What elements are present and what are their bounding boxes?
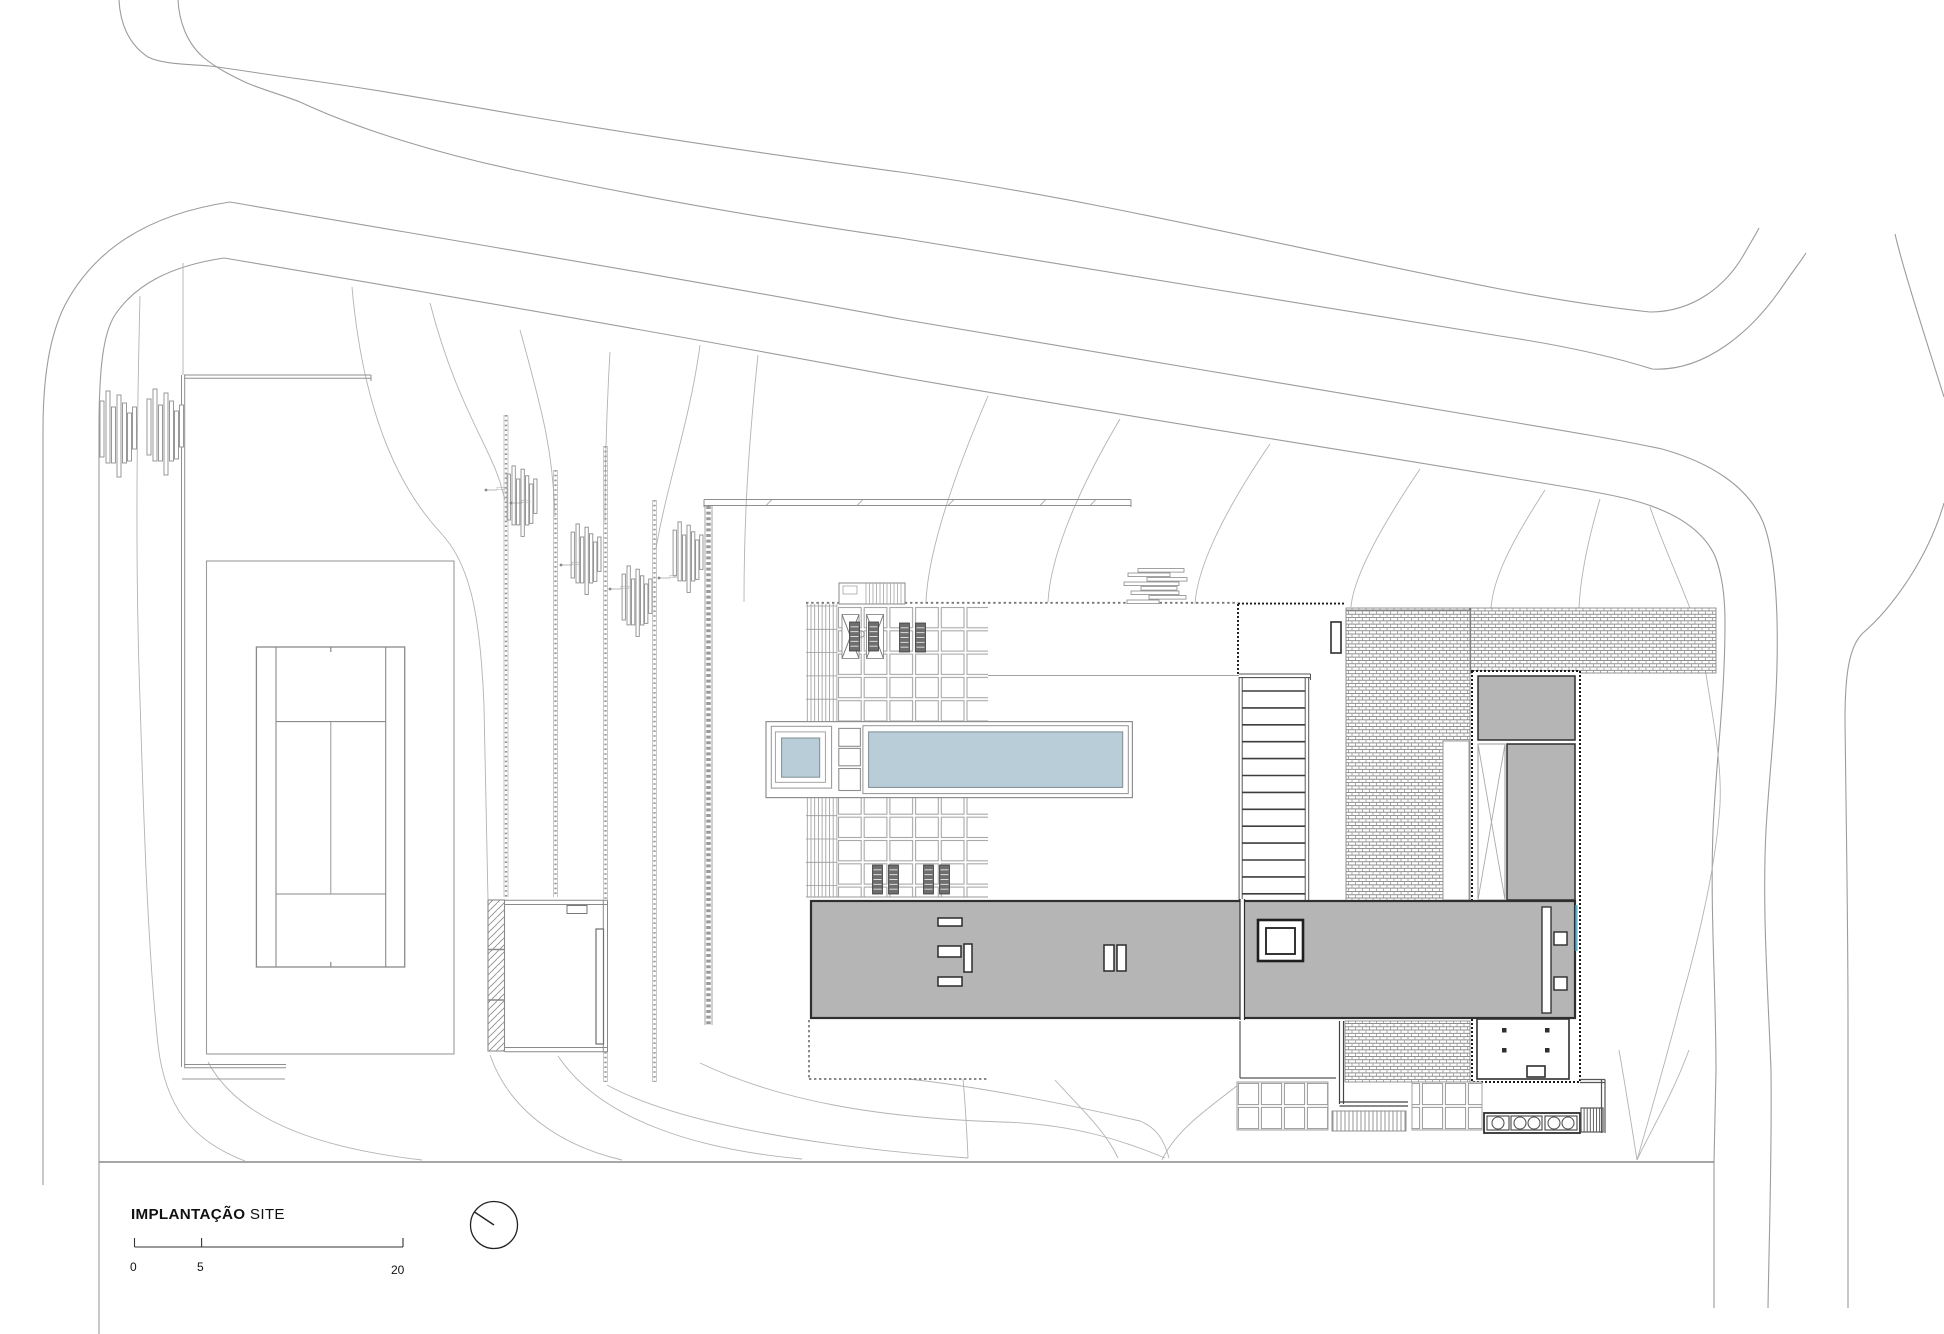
svg-text:0: 0: [130, 1260, 137, 1274]
svg-text:20: 20: [391, 1263, 405, 1277]
svg-text:5: 5: [197, 1260, 204, 1274]
svg-text:IMPLANTAÇÃO SITE: IMPLANTAÇÃO SITE: [131, 1205, 285, 1223]
